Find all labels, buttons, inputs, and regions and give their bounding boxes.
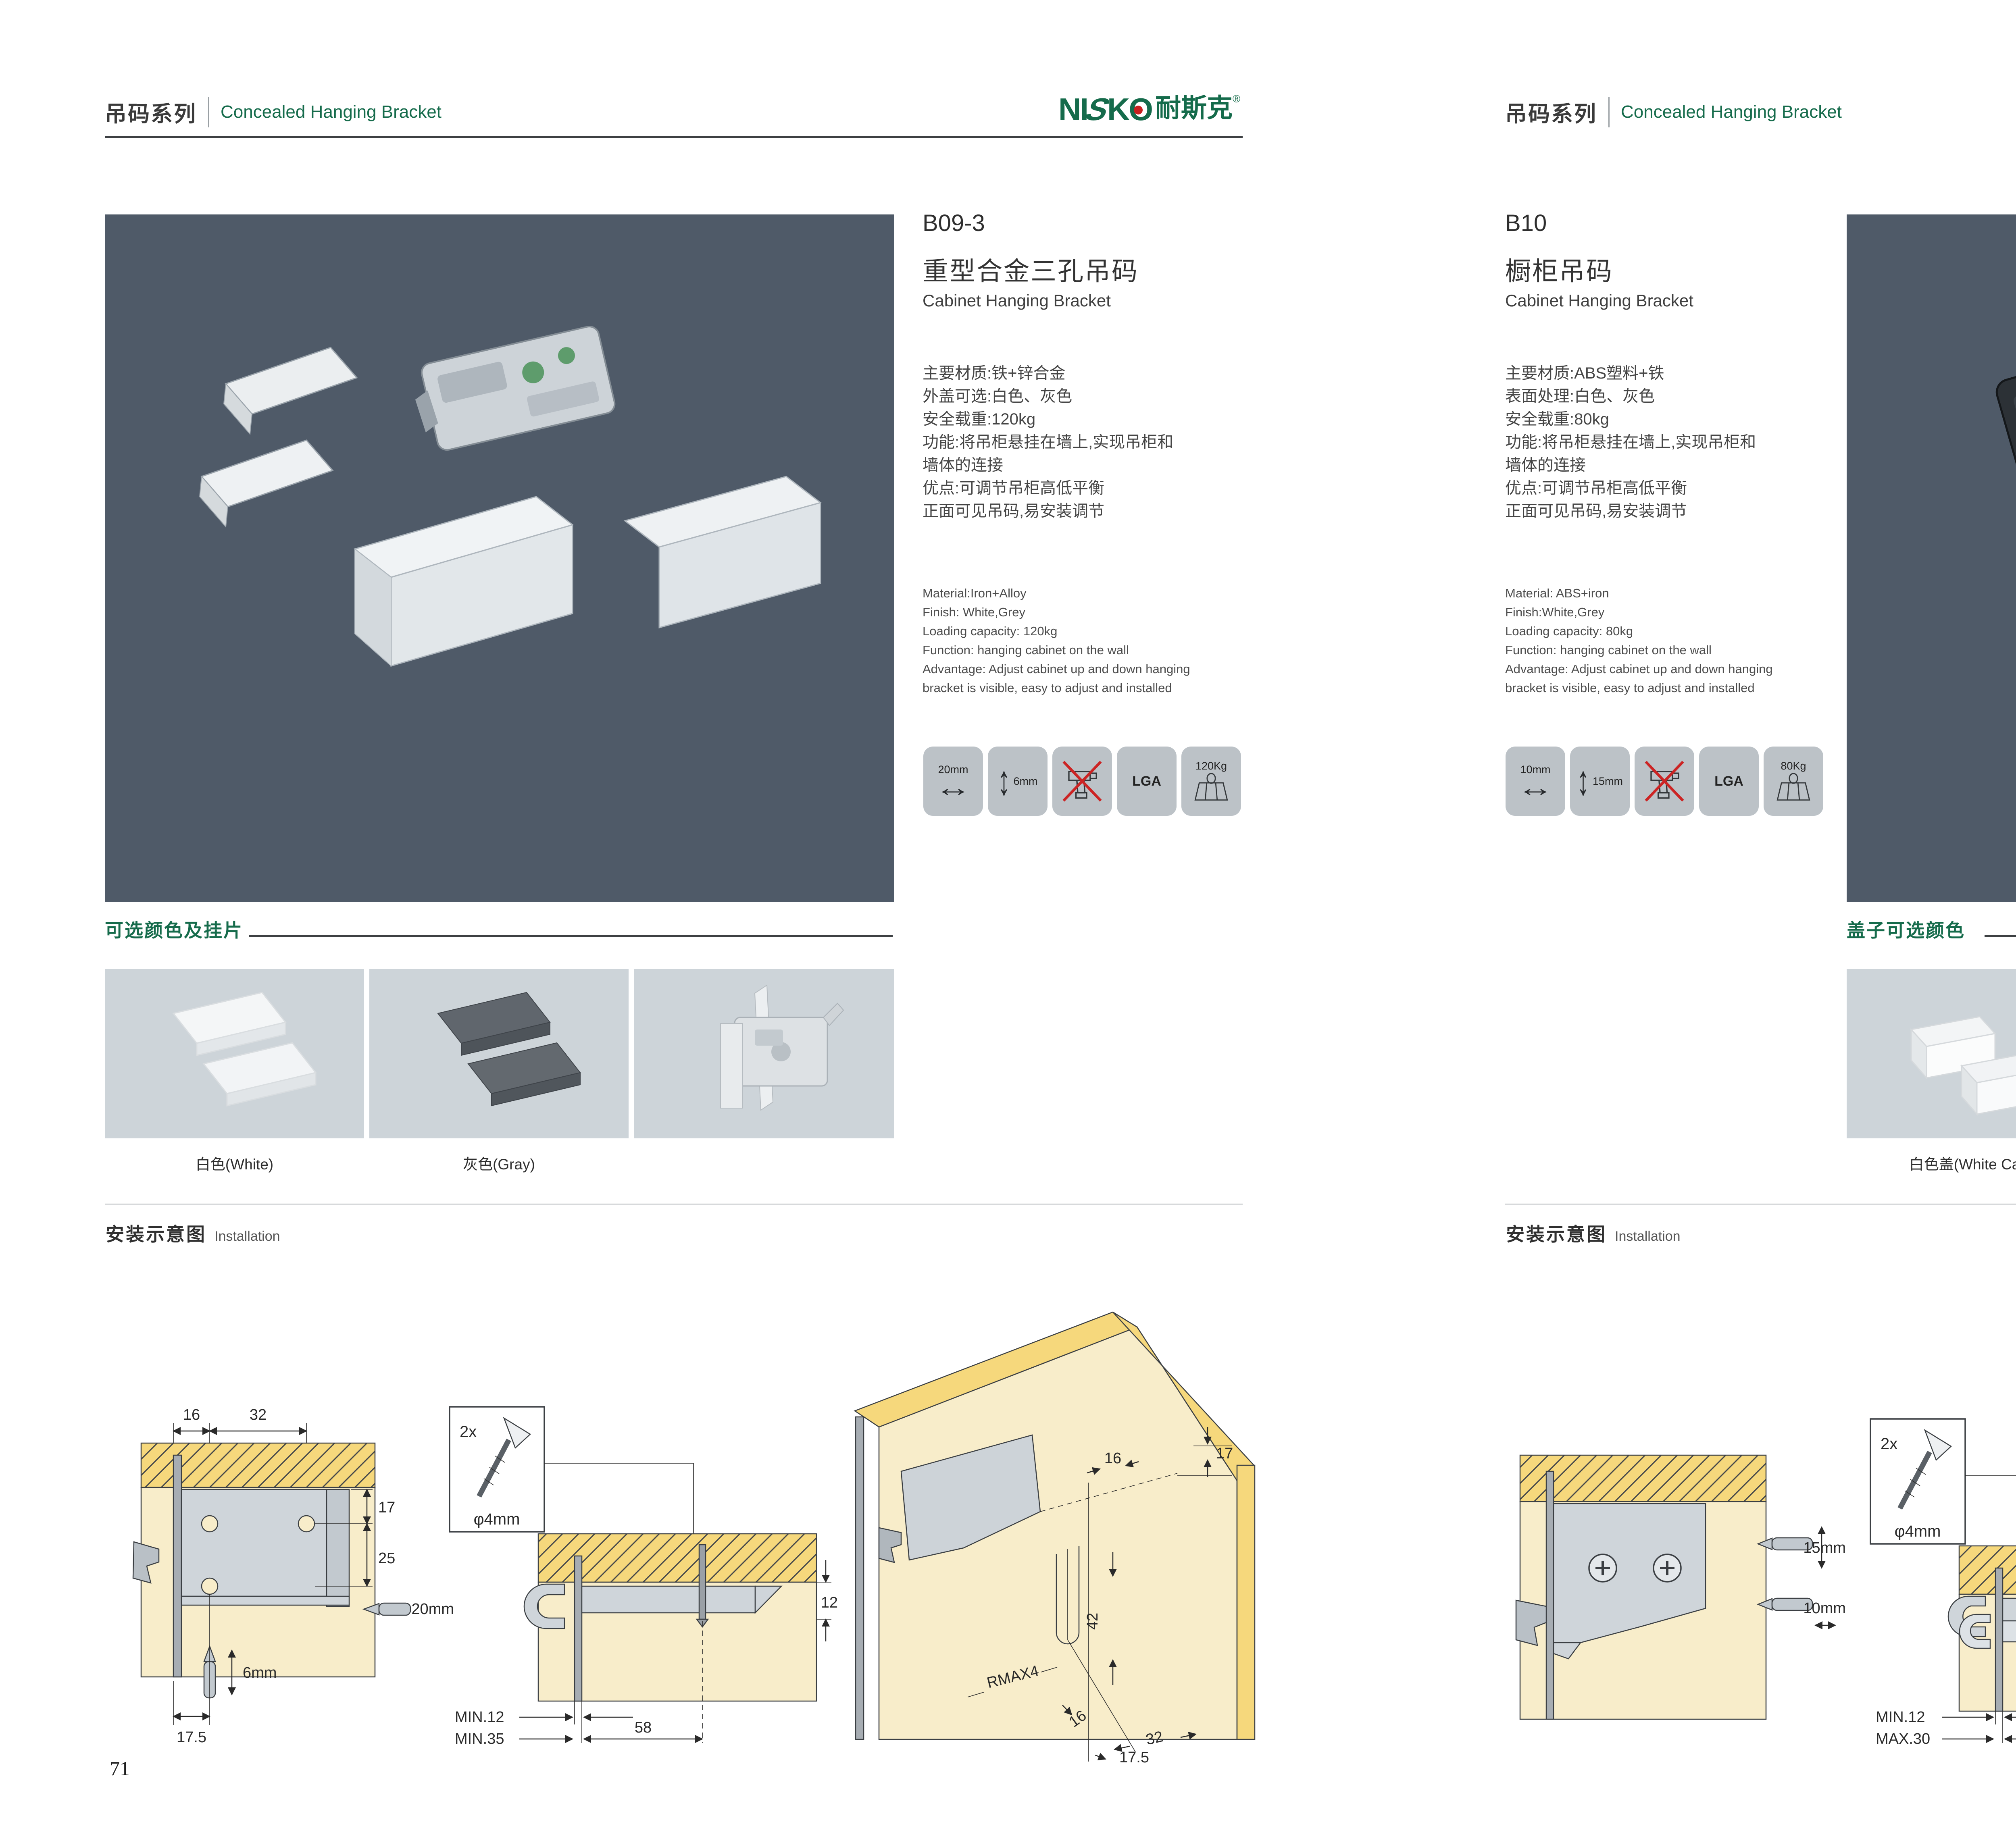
series-title-en: Concealed Hanging Bracket — [1621, 102, 1842, 122]
spec-line: Function: hanging cabinet on the wall — [1505, 641, 1840, 659]
header-divider — [208, 97, 209, 127]
swatch-gray — [369, 969, 629, 1138]
color-swatches — [105, 969, 895, 1138]
svg-text:17: 17 — [1216, 1445, 1233, 1462]
icon-load-capacity: 80Kg — [1764, 747, 1823, 816]
v-arrow-icon: ↕ — [998, 762, 1010, 801]
spec-line: Loading capacity: 120kg — [923, 622, 1257, 641]
logo-chinese: 耐斯克 — [1155, 94, 1233, 123]
specs-en: Material:Iron+Alloy Finish: White,Grey L… — [923, 584, 1257, 697]
page-number: 71 — [110, 1757, 130, 1780]
specs-zh: 主要材质:铁+锌合金 外盖可选:白色、灰色 安全载重:120kg 功能:将吊柜悬… — [923, 362, 1257, 523]
swatch-label: 白色(White) — [105, 1152, 364, 1174]
attribute-icons: 20mm ↔ ↕ 6mm LGA — [923, 747, 1241, 816]
spec-line: 功能:将吊柜悬挂在墙上,实现吊柜和 — [923, 431, 1257, 454]
nisko-logo: NISKO 耐斯克 ® — [1058, 94, 1240, 125]
series-title-zh: 吊码系列 — [105, 96, 197, 128]
model-code: B10 — [1505, 210, 1547, 237]
svg-text:15mm: 15mm — [1803, 1539, 1846, 1556]
svg-text:17.5: 17.5 — [1119, 1749, 1149, 1766]
svg-text:6mm: 6mm — [243, 1664, 277, 1681]
h-arrow-icon: ↔ — [1517, 777, 1554, 799]
spec-line: 表面处理:白色、灰色 — [1505, 385, 1840, 408]
icon-depth-adjust: ↕ 15mm — [1570, 747, 1630, 816]
diagram-side-section: 2x φ4mm 12 — [444, 1395, 839, 1745]
spec-line: 优点:可调节吊柜高低平衡 — [1505, 477, 1840, 500]
svg-text:16: 16 — [1104, 1450, 1121, 1467]
spec-line: Finish:White,Grey — [1505, 603, 1840, 622]
diagram-front-section: 15mm 10mm — [1508, 1447, 1847, 1725]
swatch-hanging-plate — [634, 969, 894, 1138]
color-swatches — [1847, 969, 2016, 1138]
registered-mark: ® — [1233, 93, 1240, 105]
svg-text:10mm: 10mm — [1803, 1600, 1846, 1617]
phillips-screw — [1654, 1554, 1681, 1582]
spec-line: 功能:将吊柜悬挂在墙上,实现吊柜和 — [1505, 431, 1840, 454]
product-photo-b09-3 — [105, 214, 894, 902]
swatch-label: 灰色(Gray) — [369, 1152, 629, 1174]
svg-text:MIN.12: MIN.12 — [1876, 1709, 1925, 1726]
section-divider — [105, 1204, 1243, 1204]
colors-rule — [249, 935, 893, 937]
header-rule — [105, 136, 1243, 138]
specs-zh: 主要材质:ABS塑料+铁 表面处理:白色、灰色 安全载重:80kg 功能:将吊柜… — [1505, 362, 1840, 523]
spec-line: bracket is visible, easy to adjust and i… — [1505, 678, 1840, 697]
spec-line: Loading capacity: 80kg — [1505, 622, 1840, 641]
svg-text:MIN.12: MIN.12 — [455, 1709, 504, 1726]
spec-line: 安全载重:80kg — [1505, 408, 1840, 431]
spec-line: 主要材质:ABS塑料+铁 — [1505, 362, 1840, 385]
icon-width-adjust: 20mm ↔ — [923, 747, 983, 816]
installation-heading: 安装示意图 Installation — [1506, 1220, 1681, 1246]
attribute-icons: 10mm ↔ ↕ 15mm LGA — [1506, 747, 1823, 816]
icon-depth-adjust: ↕ 6mm — [988, 747, 1048, 816]
spec-line: Advantage: Adjust cabinet up and down ha… — [923, 659, 1257, 678]
svg-text:17: 17 — [378, 1499, 395, 1516]
spec-line: 优点:可调节吊柜高低平衡 — [923, 477, 1257, 500]
weight-icon — [1773, 773, 1814, 803]
series-title-en: Concealed Hanging Bracket — [221, 102, 442, 122]
product-photo-b10 — [1847, 214, 2016, 902]
icon-no-drill — [1635, 747, 1694, 816]
specs-en: Material: ABS+iron Finish:White,Grey Loa… — [1505, 584, 1840, 697]
svg-text:φ4mm: φ4mm — [474, 1510, 520, 1528]
svg-text:42: 42 — [1084, 1613, 1101, 1630]
swatch-label: 白色盖(White Cap) — [1847, 1152, 2016, 1174]
icon-lga: LGA — [1117, 747, 1177, 816]
svg-text:2x: 2x — [460, 1423, 477, 1441]
spec-line: 墙体的连接 — [923, 454, 1257, 477]
icon-width-adjust: 10mm ↔ — [1506, 747, 1565, 816]
product-name-zh: 重型合金三孔吊码 — [923, 251, 1139, 288]
product-name-en: Cabinet Hanging Bracket — [1505, 291, 1693, 310]
product-name-en: Cabinet Hanging Bracket — [923, 291, 1111, 310]
weight-icon — [1191, 773, 1231, 803]
page-header: 吊码系列 Concealed Hanging Bracket — [1505, 96, 1842, 128]
svg-text:16: 16 — [183, 1406, 200, 1423]
no-drill-icon — [1060, 759, 1104, 803]
svg-text:φ4mm: φ4mm — [1895, 1523, 1941, 1540]
phillips-screw — [1589, 1554, 1616, 1582]
spec-line: Function: hanging cabinet on the wall — [923, 641, 1257, 659]
v-arrow-icon: ↕ — [1577, 762, 1589, 801]
spec-line: 墙体的连接 — [1505, 454, 1840, 477]
spec-line: Advantage: Adjust cabinet up and down ha… — [1505, 659, 1840, 678]
diagram-front-section: 16 32 17 25 20mm — [117, 1403, 456, 1749]
page-71: 吊码系列 Concealed Hanging Bracket NISKO 耐斯克… — [0, 0, 1352, 1847]
spec-line: 主要材质:铁+锌合金 — [923, 362, 1257, 385]
model-code: B09-3 — [923, 210, 985, 237]
svg-text:17.5: 17.5 — [177, 1729, 206, 1746]
spec-line: 正面可见吊码,易安装调节 — [1505, 500, 1840, 523]
diagram-perspective: 17 16 42 RMAX4 16 32 17.5 — [831, 1302, 1266, 1766]
colors-heading: 可选颜色及挂片 — [105, 916, 243, 942]
h-arrow-icon: ↔ — [935, 777, 972, 799]
swatch-white-cap — [1847, 969, 2016, 1138]
section-divider — [1505, 1204, 2016, 1204]
svg-text:2x: 2x — [1881, 1435, 1897, 1453]
spec-line: 安全载重:120kg — [923, 408, 1257, 431]
svg-text:MIN.35: MIN.35 — [455, 1731, 504, 1745]
svg-text:MAX.30: MAX.30 — [1876, 1731, 1930, 1745]
swatch-white — [105, 969, 364, 1138]
colors-rule — [1985, 935, 2016, 937]
svg-text:58: 58 — [635, 1719, 652, 1736]
spec-line: Material: ABS+iron — [1505, 584, 1840, 603]
spec-line: Material:Iron+Alloy — [923, 584, 1257, 603]
installation-heading: 安装示意图 Installation — [106, 1220, 280, 1246]
spec-line: 正面可见吊码,易安装调节 — [923, 500, 1257, 523]
product-name-zh: 橱柜吊码 — [1505, 251, 1613, 288]
spec-line: bracket is visible, easy to adjust and i… — [923, 678, 1257, 697]
catalog-spread: 吊码系列 Concealed Hanging Bracket NISKO 耐斯克… — [0, 0, 2016, 1847]
icon-load-capacity: 120Kg — [1181, 747, 1241, 816]
spec-line: Finish: White,Grey — [923, 603, 1257, 622]
svg-text:32: 32 — [250, 1406, 267, 1423]
series-title-zh: 吊码系列 — [1505, 96, 1597, 128]
no-drill-icon — [1642, 759, 1687, 803]
page-72: 吊码系列 Concealed Hanging Bracket NISKO 耐斯克… — [1352, 0, 2016, 1847]
colors-heading: 盖子可选颜色 — [1847, 916, 1965, 942]
diagram-side-section: 2x φ4mm 18 — [1864, 1395, 2016, 1745]
page-header: 吊码系列 Concealed Hanging Bracket — [105, 96, 442, 128]
spec-line: 外盖可选:白色、灰色 — [923, 385, 1257, 408]
svg-text:25: 25 — [378, 1550, 395, 1567]
header-divider — [1608, 97, 1610, 127]
icon-no-drill — [1052, 747, 1112, 816]
icon-lga: LGA — [1699, 747, 1759, 816]
